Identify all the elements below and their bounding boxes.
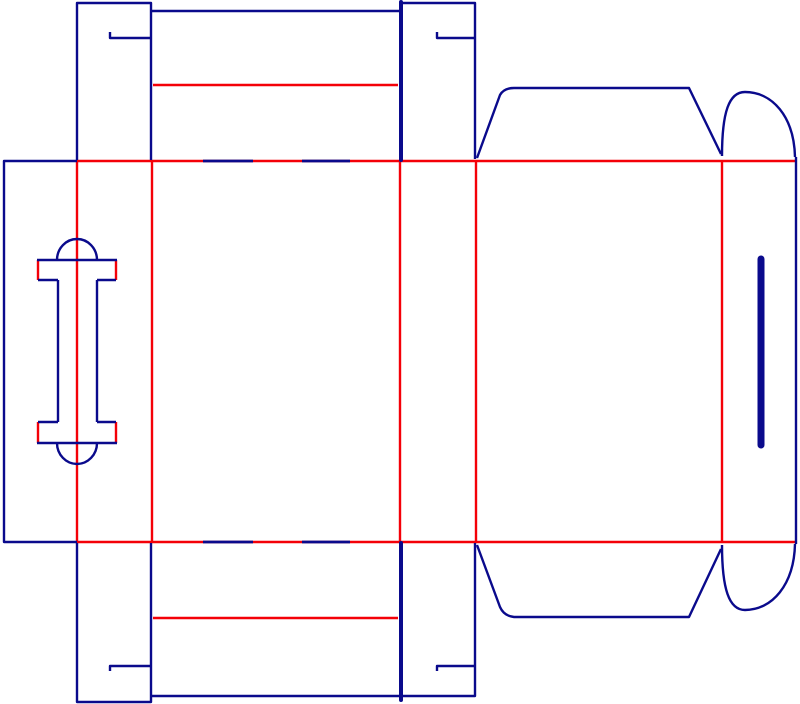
crease-lines-layer (38, 85, 795, 618)
top-dust-flap-left-outline (77, 3, 151, 160)
top-dust-flap-left-lock-slit (110, 32, 150, 38)
cut-dash-layer (203, 161, 350, 542)
top-dust-flap-right-outline (403, 3, 475, 159)
glue-flap-outline (4, 161, 77, 542)
bottom-dust-flap-right-lock-slit (437, 666, 474, 671)
dieline-svg (0, 0, 800, 704)
bottom-dust-flap-left-lock-slit (110, 666, 150, 671)
top-dust-flap-right-lock-slit (437, 32, 474, 38)
bottom-ear-flap-curve (722, 544, 795, 610)
top-back-flap-outline (477, 88, 721, 158)
dieline-canvas (0, 0, 800, 704)
top-ear-flap-curve (722, 92, 795, 157)
bottom-dust-flap-left-outline (77, 543, 151, 702)
bottom-dust-flap-right-outline (403, 543, 475, 696)
bottom-back-flap-outline (477, 545, 721, 617)
